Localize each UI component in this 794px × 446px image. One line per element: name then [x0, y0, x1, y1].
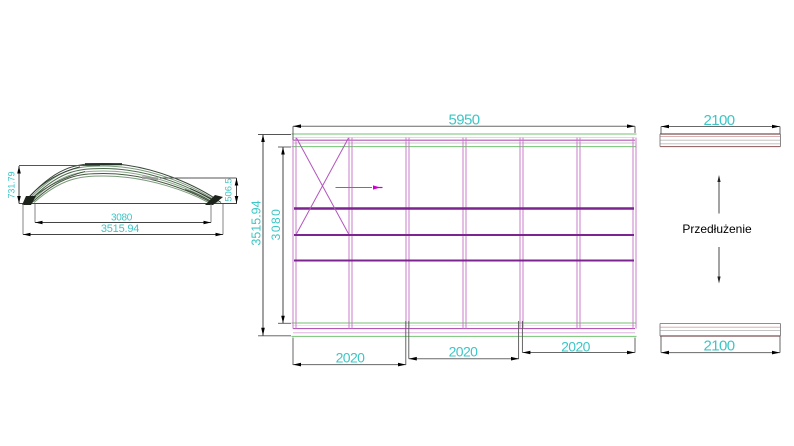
svg-text:Przedłużenie: Przedłużenie — [682, 222, 752, 236]
svg-text:3515.94: 3515.94 — [101, 223, 139, 235]
svg-text:5950: 5950 — [449, 112, 480, 129]
svg-text:2020: 2020 — [336, 350, 366, 366]
svg-text:506.5: 506.5 — [224, 178, 235, 201]
svg-text:3515.94: 3515.94 — [249, 200, 263, 245]
svg-text:2020: 2020 — [449, 344, 479, 360]
svg-text:3080: 3080 — [269, 208, 283, 241]
svg-text:2020: 2020 — [561, 338, 591, 354]
svg-text:2100: 2100 — [704, 338, 735, 355]
svg-text:2100: 2100 — [704, 112, 735, 129]
svg-text:731.79: 731.79 — [7, 171, 17, 198]
